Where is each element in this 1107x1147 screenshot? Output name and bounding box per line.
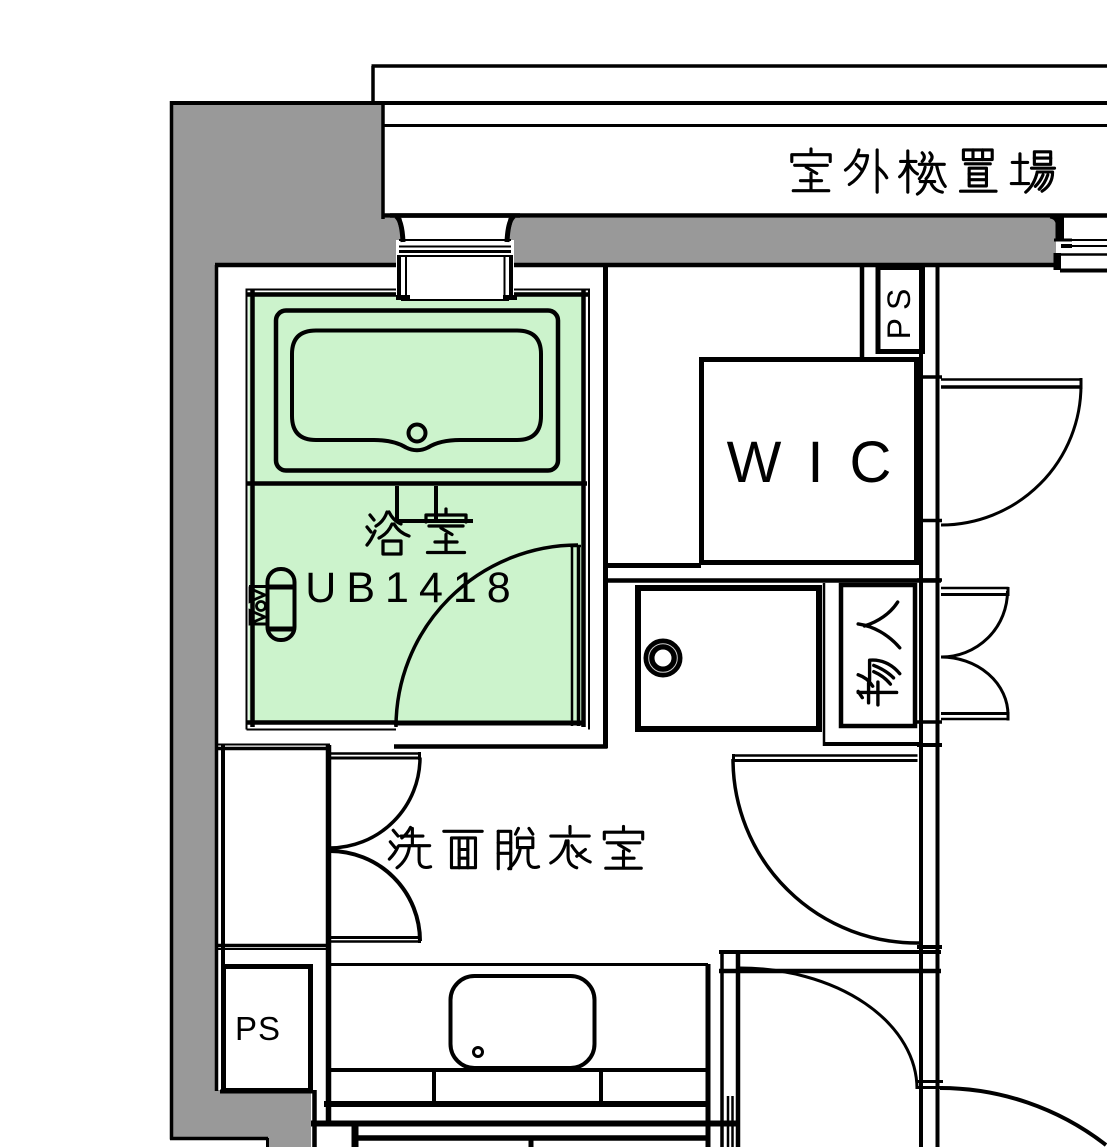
svg-text:WIC: WIC	[727, 430, 918, 495]
svg-text:UB1418: UB1418	[305, 564, 520, 612]
svg-text:PS: PS	[881, 281, 917, 340]
svg-text:PS: PS	[235, 1010, 281, 1047]
